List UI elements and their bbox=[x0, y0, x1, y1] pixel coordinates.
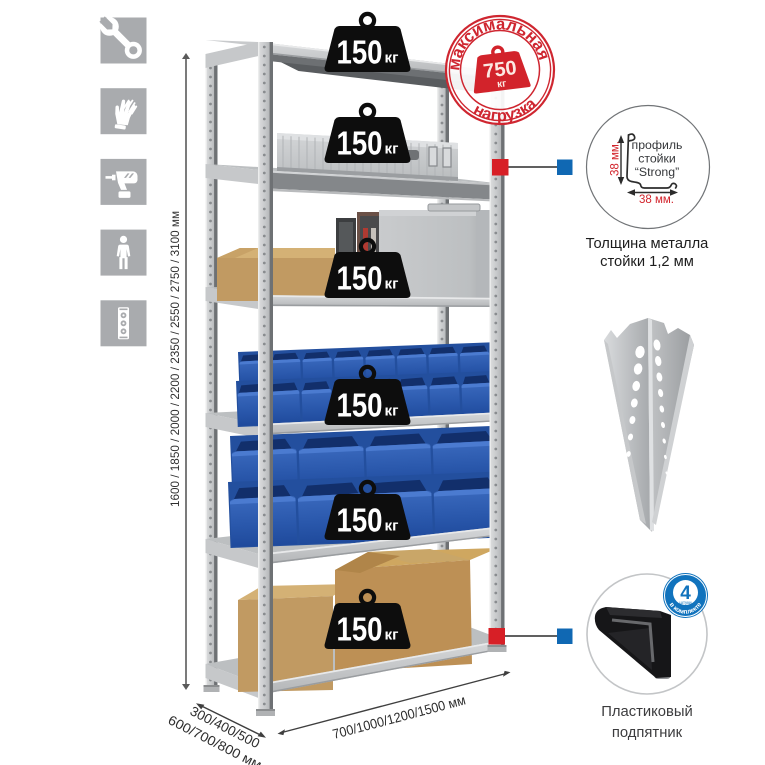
svg-text:Толщина металла: Толщина металла bbox=[586, 236, 710, 252]
svg-text:38 мм.: 38 мм. bbox=[610, 141, 622, 176]
svg-text:“Strong”: “Strong” bbox=[635, 165, 679, 179]
svg-text:150: 150 bbox=[337, 125, 383, 162]
svg-text:150: 150 bbox=[337, 502, 383, 539]
svg-text:подпятник: подпятник bbox=[612, 725, 683, 741]
svg-text:стойки 1,2 мм: стойки 1,2 мм bbox=[600, 254, 694, 270]
svg-text:кг: кг bbox=[385, 403, 399, 420]
svg-text:150: 150 bbox=[337, 611, 383, 648]
svg-text:1600 / 1850 / 2000 / 2200 / 23: 1600 / 1850 / 2000 / 2200 / 2350 / 2550 … bbox=[168, 211, 182, 507]
svg-text:150: 150 bbox=[337, 387, 383, 424]
svg-text:150: 150 bbox=[337, 260, 383, 297]
svg-text:Пластиковый: Пластиковый bbox=[601, 704, 693, 720]
svg-text:профиль: профиль bbox=[632, 138, 683, 152]
svg-text:150: 150 bbox=[337, 34, 383, 71]
svg-text:кг: кг bbox=[385, 518, 399, 535]
svg-text:38 мм.: 38 мм. bbox=[639, 194, 674, 206]
svg-text:кг: кг bbox=[385, 276, 399, 293]
svg-text:кг: кг bbox=[497, 78, 507, 90]
svg-text:кг: кг bbox=[385, 627, 399, 644]
svg-text:кг: кг bbox=[385, 50, 399, 67]
svg-text:штуки: штуки bbox=[679, 600, 692, 605]
svg-text:кг: кг bbox=[385, 141, 399, 158]
svg-text:стойки: стойки bbox=[638, 152, 676, 166]
